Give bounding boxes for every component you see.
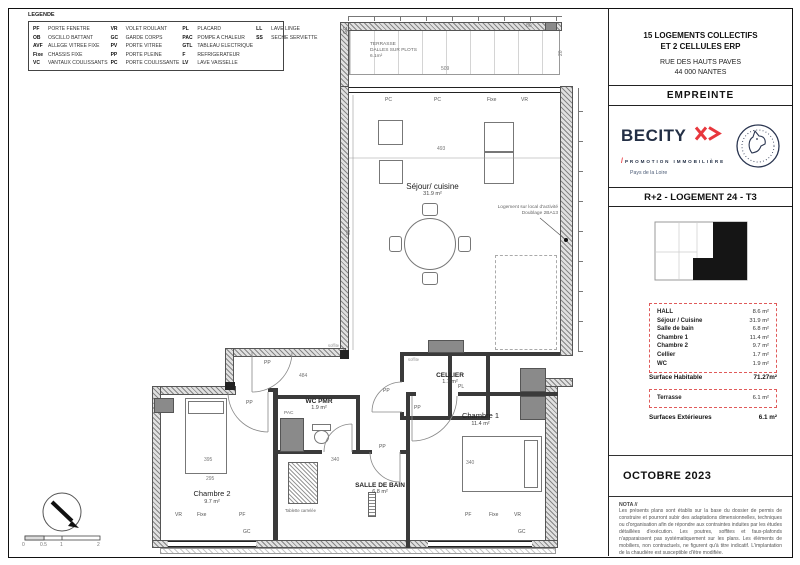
date-text: OCTOBRE 2023 [609,470,711,482]
tech-block-lower [520,396,546,420]
becity-logo: BECITY /PROMOTION IMMOBILIÈRE Pays de la… [621,125,725,176]
legend-label: PLACARD [197,25,221,34]
area-row: Séjour / Cuisine31.9 m² [657,317,769,326]
dimension-line-top [348,16,562,21]
surface-habitable-value: 71.27m² [754,374,777,381]
area-row: HALL8.6 m² [657,308,769,317]
legend-item: VRVOLET ROULANT [111,25,180,34]
areas-table: HALL8.6 m²Séjour / Cuisine31.9 m²Salle d… [649,303,777,373]
legend-item: AVFALLEGE VITREE FIXE [33,42,108,51]
dim-493: 493 [437,146,445,152]
opening-tag-fixe: Fixe [489,512,498,518]
legend-label: PORTE COULISSANTE [126,59,180,68]
dim-340: 340 [331,457,339,463]
area-value: 6.8 m² [753,325,769,334]
area-label: WC [657,360,667,369]
architect-stamp-icon [733,121,783,171]
chair [458,236,471,252]
drawing-title-band: R+2 - LOGEMENT 24 - T3 [609,187,792,207]
window-band-sejour [349,87,560,93]
area-row: Terrasse 6.1 m² [657,394,769,403]
room-name: Chambre 1 [438,412,523,421]
dimension-line-right [578,88,583,352]
opening-tag-vr: VR [175,512,182,518]
legend-item: PPPORTE PLEINE [111,51,180,60]
legend-abbr: VR [111,25,126,34]
opening-tag-pp: PP [414,405,421,411]
legend-abbr: PC [111,59,126,68]
wall-cellier-left-a [400,352,404,382]
soffite-label: soffite [328,343,339,348]
legend-title: LEGENDE [28,12,55,18]
legend-abbr: LV [182,59,197,68]
legend-abbr: AVF [33,42,48,51]
plan-sheet: LEGENDE PFPORTE FENETREOBOSCILLO BATTANT… [0,0,800,565]
area-value: 1.7 m² [753,351,769,360]
dim-484: 484 [299,373,307,379]
pac-unit [280,418,304,452]
opening-tag-fixe: Fixe [197,512,206,518]
project-address1: RUE DES HAUTS PAVES [609,58,792,68]
duct-block [428,340,464,353]
becity-x-icon [694,125,722,142]
pillow-ch2 [188,401,224,414]
wall-wing-top [152,386,236,395]
window-band-ch1 [428,541,532,547]
legend-label: ALLEGE VITREE FIXE [48,42,99,51]
legend-item: SSSECHE SERVIETTE [256,34,314,43]
window-band-ch2 [168,541,256,547]
legend-item: PFPORTE FENETRE [33,25,108,34]
wall-ch1-left [406,392,410,548]
room-area: 1.7 m² [405,379,495,385]
area-row: Salle de bain6.8 m² [657,325,769,334]
room-area: 9.7 m² [172,499,252,505]
legend-column: PFPORTE FENETREOBOSCILLO BATTANTAVFALLEG… [33,25,108,67]
area-row: Chambre 111.4 m² [657,334,769,343]
annotation-line2: Doublage 2BA13 [448,211,558,217]
legend-column: LLLAVE LINGESSSECHE SERVIETTE [256,25,314,67]
legend-abbr: F [182,51,197,60]
armchair [378,120,403,145]
area-label: Cellier [657,351,675,360]
legend-abbr: GC [111,34,126,43]
legend-item: GTLTABLEAU ELECTRIQUE [182,42,253,51]
becity-region: Pays de la Loire [630,170,725,176]
opening-tag-vr: VR [514,512,521,518]
legend-label: VOLET ROULANT [126,25,168,34]
terrasse-row-box: Terrasse 6.1 m² [649,389,777,408]
ceiling-dashed-zone [495,255,557,350]
room-area: 11.4 m² [438,421,523,427]
nota-text: Les présents plans sont établis sur la b… [619,508,782,557]
opening-tag-pp: PP [379,444,386,450]
kitchen-unit [484,152,514,184]
legend-label: LAVE LINGE [271,25,300,34]
area-label: Chambre 1 [657,334,688,343]
legend-item: PLPLACARD [182,25,253,34]
room-label-cellier: CELLIER 1.7 m² [405,372,495,386]
room-area: 6.8 m² [335,489,425,495]
area-value: 11.4 m² [750,334,769,343]
legend-abbr: PL [182,25,197,34]
tech-block-upper [520,368,546,392]
legend-label: PORTE VITREE [126,42,163,51]
legend-abbr: SS [256,34,271,43]
chair [422,272,438,285]
legend-column: VRVOLET ROULANTGCGARDE CORPSPVPORTE VITR… [111,25,180,67]
becity-wordmark: BECITY [621,126,686,146]
scale-tick-0: 0 [22,542,25,548]
room-area: 31.9 m² [385,191,480,197]
terrasse-value: 6.1 m² [753,394,769,403]
legend-abbr: Fixe [33,51,48,60]
scale-tick-05: 0.5 [40,542,47,548]
wall-wc-right [356,395,360,454]
legend-abbr: GTL [182,42,197,51]
shower-tray [288,462,318,504]
soffite-label: soffite [408,357,419,362]
annotation-doublage: Logement sur local d'activité Doublage 2… [448,205,558,217]
room-name: CELLIER [405,372,495,379]
area-value: 31.9 m² [749,317,769,326]
legend-abbr: PAC [182,34,197,43]
area-label: Chambre 2 [657,342,688,351]
area-row: Chambre 29.7 m² [657,342,769,351]
legend-label: GARDE CORPS [126,34,163,43]
legend-item: PACPOMPE A CHALEUR [182,34,253,43]
legend-label: PORTE FENETRE [48,25,90,34]
room-label-ch1: Chambre 1 11.4 m² [438,412,523,427]
wall-pl-right [486,352,490,420]
date-band: OCTOBRE 2023 [609,455,792,497]
room-label-sdb: SALLE DE BAIN 6.8 m² [335,482,425,496]
area-row: WC1.9 m² [657,360,769,369]
post-entry [225,382,235,390]
legend-item: GCGARDE CORPS [111,34,180,43]
dim-295: 295 [206,476,214,482]
opening-tag-pp: PP [246,400,253,406]
key-plan [645,212,757,294]
dining-table [404,218,456,270]
terrasse-area: 6.1m² [370,54,417,60]
legend-item: FixeCHASSIS FIXE [33,51,108,60]
balcony-slab [160,548,556,554]
wall-ch2-right [273,390,278,540]
project-line2: ET 2 CELLULES ERP [609,41,792,52]
scale-tick-1: 1 [60,542,63,548]
surfaces-exterieures-value: 6.1 m² [759,414,777,421]
legend-item: LLLAVE LINGE [256,25,314,34]
opening-tag-pf: PF [465,512,471,518]
legend-label: REFRIGERATEUR [197,51,239,60]
pillow-ch1 [524,440,538,488]
wall-sejour-bottom [400,352,560,356]
kitchen-unit [484,122,514,152]
opening-tag-gc: GC [343,27,349,35]
opening-tag-pl: PL [458,384,464,390]
legend-item: PVPORTE VITREE [111,42,180,51]
area-value: 1.9 m² [753,360,769,369]
legend-label: POMPE A CHALEUR [197,34,245,43]
scale-tick-2: 2 [97,542,100,548]
dim-395: 395 [204,457,212,463]
project-info: 15 LOGEMENTS COLLECTIFS ET 2 CELLULES ER… [609,30,792,78]
legend-item: PCPORTE COULISSANTE [111,59,180,68]
legend-label: TABLEAU ELECTRIQUE [197,42,253,51]
nota-block: NOTA // Les présents plans sont établis … [609,502,792,557]
legend-abbr: PP [111,51,126,60]
area-label: Salle de bain [657,325,694,334]
opening-tag-fixe: Fixe [487,97,496,103]
room-label-wc: WC PMR 1.9 m² [285,398,353,412]
wall-cellier-pl-divider [448,352,452,420]
legend-label: PORTE PLEINE [126,51,162,60]
legend-abbr: LL [256,25,271,34]
post-sejour-corner [340,350,349,359]
armchair [379,160,403,184]
surface-habitable-label: Surface Habitable [649,374,702,381]
legend-item: VCVANTAUX COULISSANTS [33,59,108,68]
room-label-ch2: Chambre 2 9.7 m² [172,490,252,505]
wall-right-upper [560,86,573,356]
post-terrace-right [545,22,557,31]
legend-item: LVLAVE VAISSELLE [182,59,253,68]
surfaces-exterieures-label: Surfaces Extérieures [649,414,712,421]
chair [389,236,402,252]
room-name: Chambre 2 [172,490,252,499]
surfaces-exterieures-row: Surfaces Extérieures 6.1 m² [641,414,785,421]
legend-item: FREFRIGERATEUR [182,51,253,60]
opening-tag-vr: VR [521,97,528,103]
becity-tagline: PROMOTION IMMOBILIÈRE [625,159,725,164]
dim-509: 509 [441,66,449,72]
room-name: Séjour/ cuisine [385,182,480,191]
wall-sejour-left [340,86,349,357]
area-value: 8.6 m² [753,308,769,317]
room-label-sejour: Séjour/ cuisine 31.9 m² [385,182,480,198]
red-slash-icon: / [621,158,623,165]
room-name: WC PMR [285,398,353,405]
opening-tag-pc: PC [385,97,392,103]
opening-tag-pp: PP [383,388,390,394]
opening-tag-gc: GC [518,529,526,535]
dim-340: 340 [466,460,474,466]
dim-80: 80 [526,23,532,29]
pac-label: PAC [284,411,294,416]
dim-594: 594 [346,227,352,235]
opening-tag-pc: PC [434,97,441,103]
legend-item: OBOSCILLO BATTANT [33,34,108,43]
surface-habitable-row: Surface Habitable 71.27m² [641,374,785,381]
legend-label: CHASSIS FIXE [48,51,82,60]
wing-corner-block [154,398,174,413]
architect-band: EMPREINTE [609,85,792,106]
legend-abbr: OB [33,34,48,43]
legend-column: PLPLACARDPACPOMPE A CHALEURGTLTABLEAU EL… [182,25,253,67]
room-name: SALLE DE BAIN [335,482,425,489]
area-value: 9.7 m² [753,342,769,351]
legend-abbr: PV [111,42,126,51]
opening-tag-pp: PP [264,360,271,366]
dim-20: 20 [558,50,564,56]
opening-tag-gc: GC [243,529,251,535]
wall-wc-bottom-b [352,450,372,454]
wall-entry-top [225,348,346,357]
area-row: Cellier1.7 m² [657,351,769,360]
legend-label: LAVE VAISSELLE [197,59,237,68]
area-label: HALL [657,308,673,317]
legend-box: PFPORTE FENETREOBOSCILLO BATTANTAVFALLEG… [28,21,284,71]
toilet [314,430,329,444]
room-label-terrasse: TERRASSE DALLES SUR PLOTS 6.1m² [370,42,417,61]
legend-label: SECHE SERVIETTE [271,34,317,43]
legend-abbr: VC [33,59,48,68]
opening-tag-pf: PF [239,512,245,518]
legend-abbr: PF [33,25,48,34]
toilet-tank [312,424,331,431]
chair [422,203,438,216]
developer-logo-block: BECITY /PROMOTION IMMOBILIÈRE Pays de la… [609,113,792,187]
title-block: 15 LOGEMENTS COLLECTIFS ET 2 CELLULES ER… [608,8,792,556]
project-line1: 15 LOGEMENTS COLLECTIFS [609,30,792,41]
legend-label: VANTAUX COULISSANTS [48,59,108,68]
legend-label: OSCILLO BATTANT [48,34,93,43]
area-label: Séjour / Cuisine [657,317,702,326]
room-area: 1.9 m² [285,405,353,411]
wall-ch2-top-stub [268,388,278,392]
wall-right-lower [545,386,558,548]
tablette-label: Tablette carrelée [285,508,316,513]
project-address2: 44 000 NANTES [609,68,792,78]
terrasse-label: Terrasse [657,394,682,403]
